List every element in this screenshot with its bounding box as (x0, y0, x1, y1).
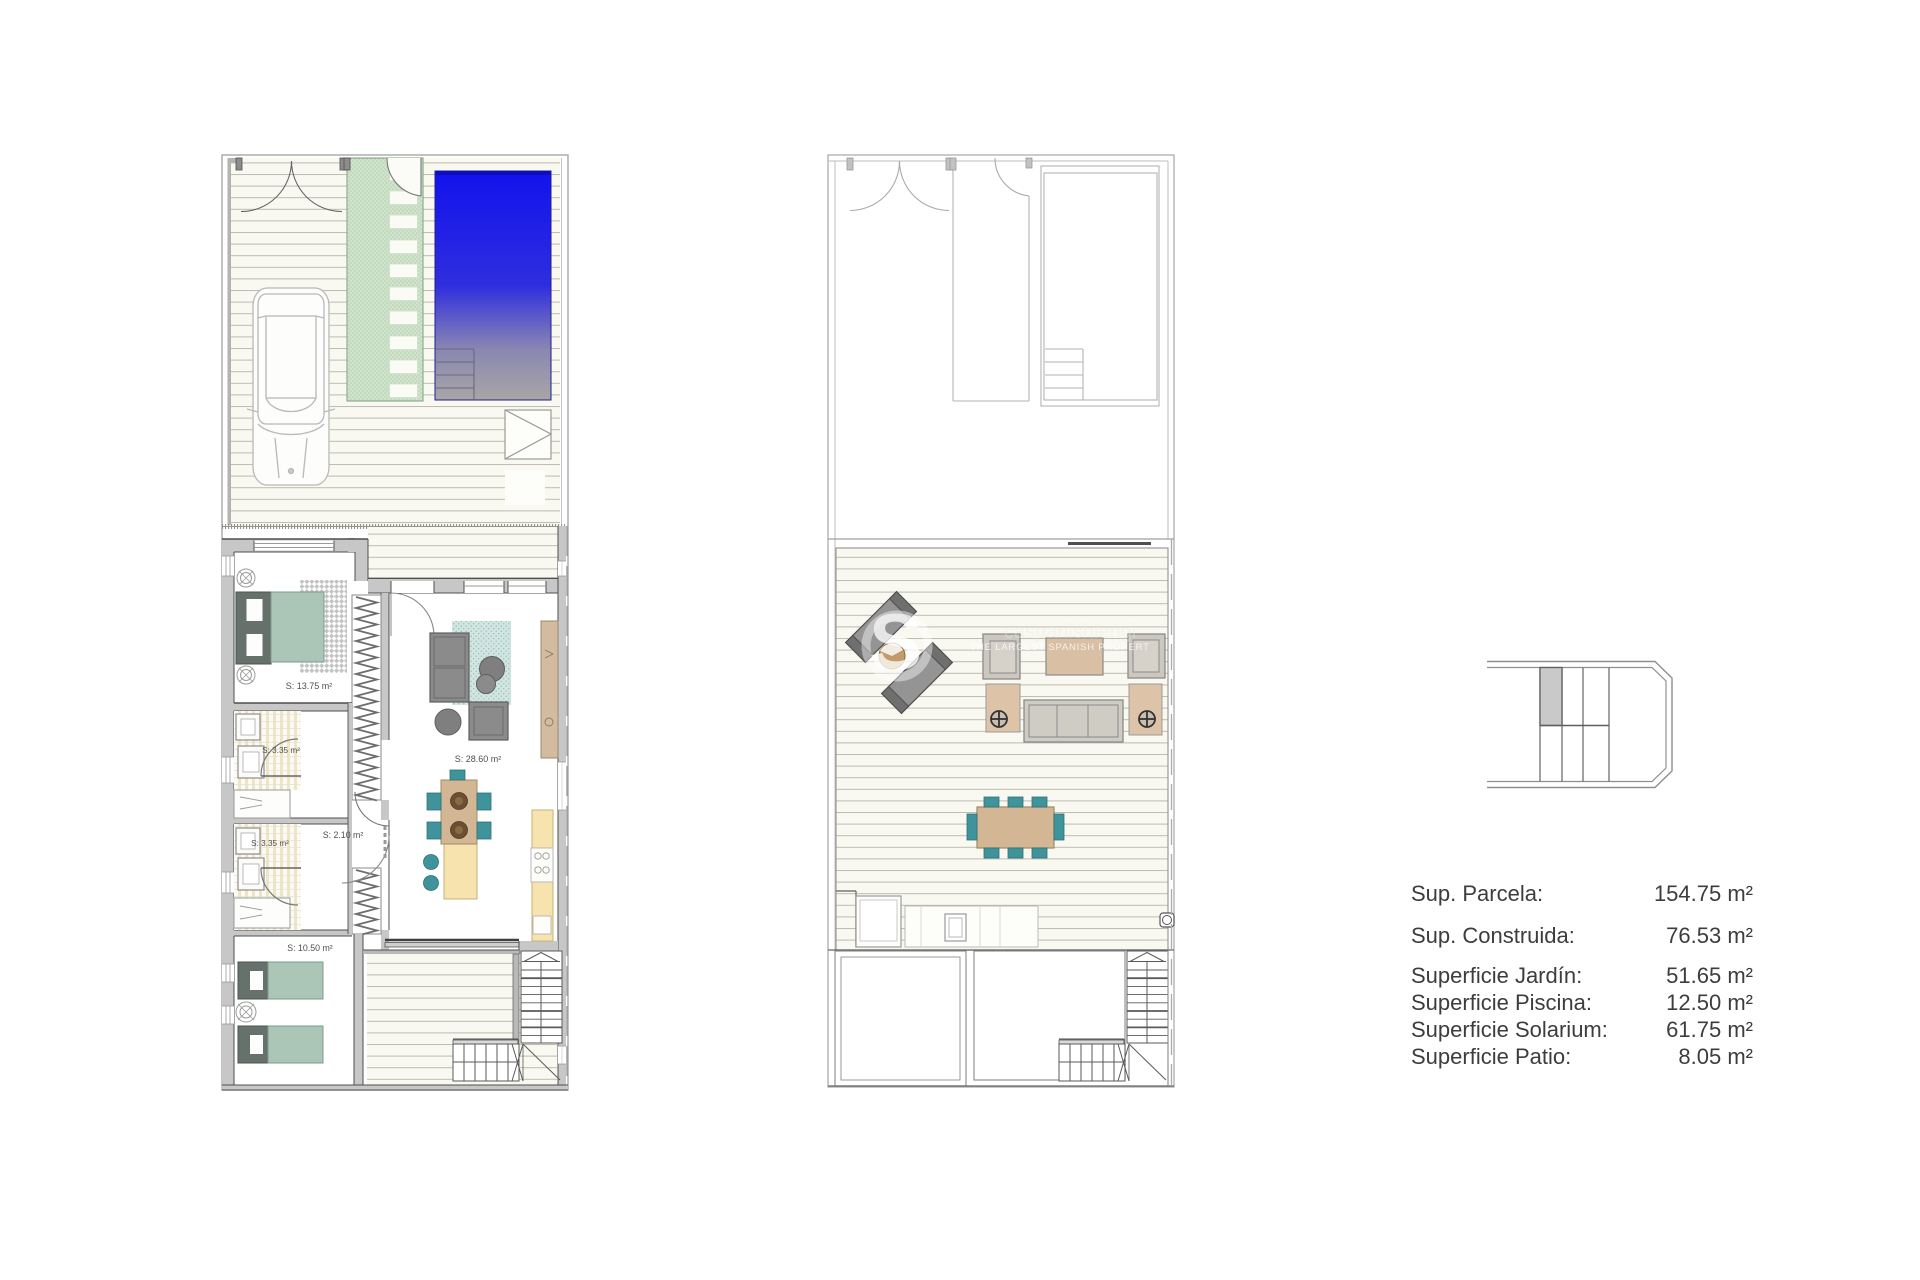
svg-text:Superficie Jardín:: Superficie Jardín: (1411, 963, 1582, 988)
svg-text:76.53 m²: 76.53 m² (1666, 923, 1753, 948)
svg-text:12.50 m²: 12.50 m² (1666, 990, 1753, 1015)
svg-text:51.65 m²: 51.65 m² (1666, 963, 1753, 988)
svg-text:S: 3.35 m²: S: 3.35 m² (262, 746, 300, 755)
svg-text:Superficie Piscina:: Superficie Piscina: (1411, 990, 1592, 1015)
svg-text:S: 10.50 m²: S: 10.50 m² (287, 943, 333, 953)
svg-text:Superficie Patio:: Superficie Patio: (1411, 1044, 1571, 1069)
svg-text:S: 13.75 m²: S: 13.75 m² (286, 681, 333, 691)
svg-text:61.75 m²: 61.75 m² (1666, 1017, 1753, 1042)
svg-text:S: S (869, 597, 922, 686)
svg-text:Sup. Parcela:: Sup. Parcela: (1411, 881, 1543, 906)
svg-text:THE LARGEST SPANISH PROPERT: THE LARGEST SPANISH PROPERT (970, 642, 1149, 653)
svg-text:8.05 m²: 8.05 m² (1678, 1044, 1753, 1069)
svg-text:caspanishlengi: caspanishlengi (1004, 621, 1136, 643)
svg-text:Sup. Construida:: Sup. Construida: (1411, 923, 1575, 948)
svg-text:Superficie Solarium:: Superficie Solarium: (1411, 1017, 1608, 1042)
svg-text:S: 2.10 m²: S: 2.10 m² (323, 830, 364, 840)
svg-text:154.75 m²: 154.75 m² (1654, 881, 1753, 906)
svg-text:S: 3.35 m²: S: 3.35 m² (251, 839, 289, 848)
svg-text:S: 28.60 m²: S: 28.60 m² (455, 754, 502, 764)
